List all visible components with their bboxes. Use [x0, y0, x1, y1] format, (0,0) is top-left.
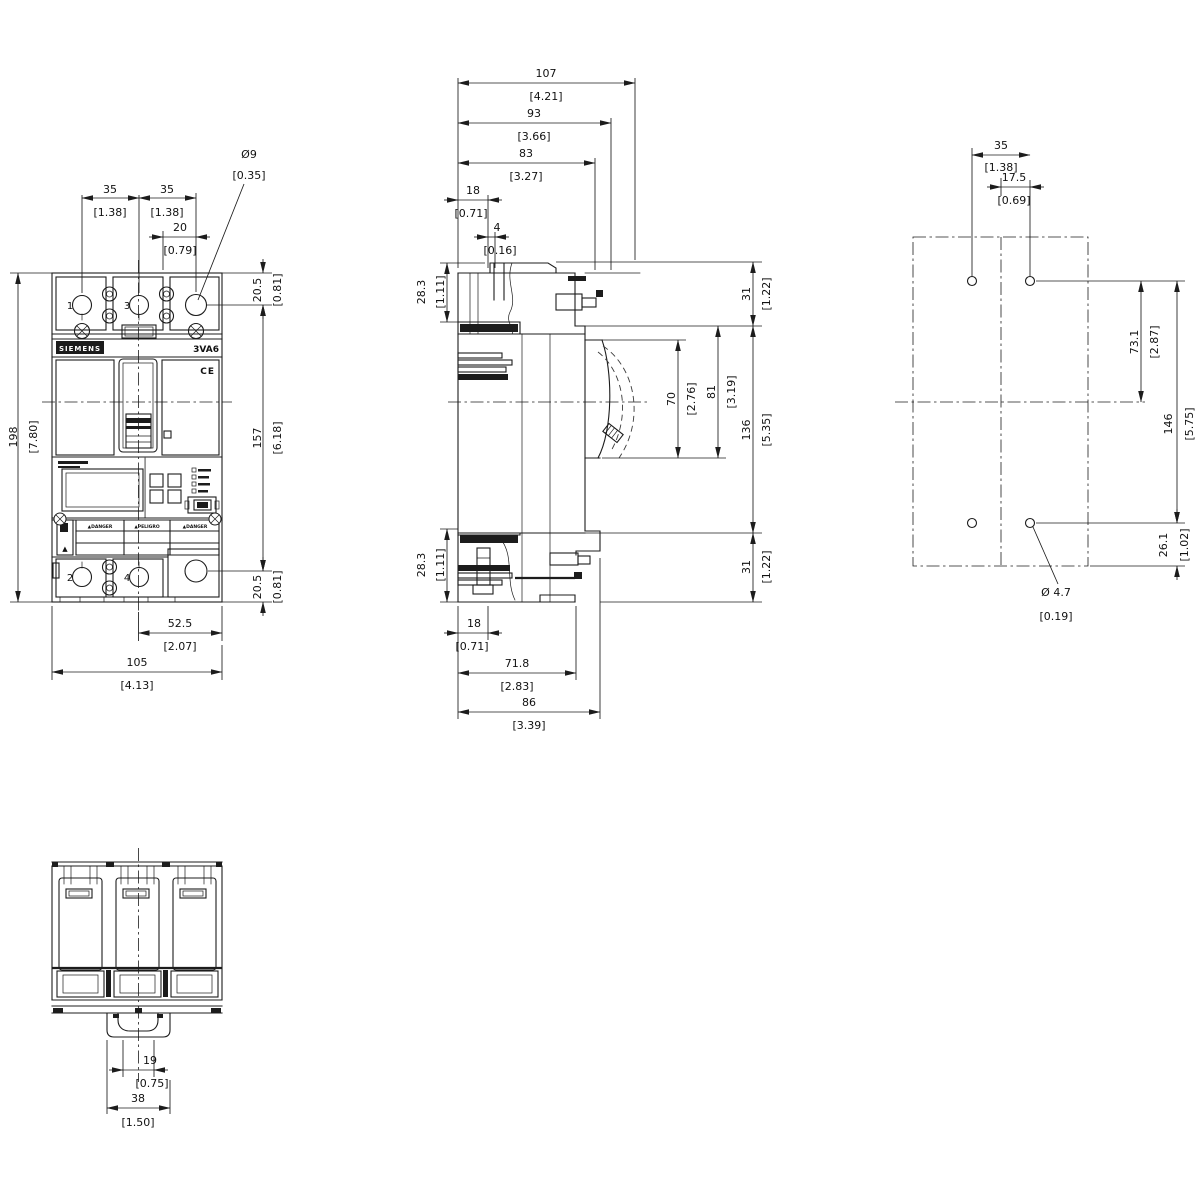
- dim-side-depth-cover-mm: 83: [519, 147, 533, 160]
- dim-drill-row-span-in: [5.75]: [1183, 407, 1196, 440]
- dim-front-bottom-margin-mm: 20.5: [251, 575, 264, 600]
- etu-test-port: [185, 497, 219, 513]
- terminal-hole-5: [186, 295, 207, 316]
- dim-drill-bottom-offset-mm: 26.1: [1157, 533, 1170, 558]
- dim-bottom-rail-width-mm: 38: [131, 1092, 145, 1105]
- dim-side-screw-offset-mm: 4: [494, 221, 501, 234]
- mounting-hole: [1026, 519, 1035, 528]
- pole-module: [116, 866, 159, 970]
- dim-front-top-margin-in: [0.81]: [271, 273, 284, 306]
- dim-side-bottom-terminal-h-in: [1.11]: [434, 548, 447, 581]
- handle-escutcheon: [585, 340, 634, 458]
- dim-front-height-mm: 198: [7, 427, 20, 448]
- dim-drill-center-offset-in: [0.69]: [997, 194, 1030, 207]
- dim-side-escutcheon-h-in: [3.19]: [725, 375, 738, 408]
- side-profile: [458, 263, 640, 602]
- dim-front-top-margin-mm: 20.5: [251, 278, 264, 303]
- dim-bottom-rail-clip-in: [0.75]: [135, 1077, 168, 1090]
- dim-side-escutcheon-h-mm: 81: [705, 385, 718, 399]
- dim-front-pitch-left-in: [1.38]: [93, 206, 126, 219]
- mounting-hole: [968, 519, 977, 528]
- dim-front-height-in: [7.80]: [27, 420, 40, 453]
- side-dimensions: 107 [4.21] 93 [3.66] 83 [3.27] 18 [0.71]…: [415, 67, 773, 732]
- terminal-number-2: 2: [67, 573, 73, 584]
- front-top-terminals: 1 3: [56, 277, 219, 330]
- etu-button: [168, 490, 181, 503]
- etu-status-leds: [192, 468, 211, 493]
- dim-side-depth-cover-in: [3.27]: [509, 170, 542, 183]
- dim-drill-row-to-center-in: [2.87]: [1148, 325, 1161, 358]
- side-view: 107 [4.21] 93 [3.66] 83 [3.27] 18 [0.71]…: [415, 67, 773, 732]
- dim-side-base-depth-mm: 71.8: [505, 657, 530, 670]
- dim-side-terminal-depth-in: [0.71]: [454, 207, 487, 220]
- terminal-hole-6: [185, 560, 207, 582]
- dim-front-hole-span-in: [6.18]: [271, 421, 284, 454]
- dim-side-screw-offset-in: [0.16]: [483, 244, 516, 257]
- mounting-hole: [1026, 277, 1035, 286]
- dim-drill-row-span-mm: 146: [1162, 414, 1175, 435]
- dim-front-pitch-right-mm: 35: [160, 183, 174, 196]
- dim-drill-hole-dia-mm: Ø 4.7: [1041, 586, 1071, 599]
- dim-side-depth-max-in: [4.21]: [529, 90, 562, 103]
- etu-button: [168, 474, 181, 487]
- terminal-number-4: 4: [124, 573, 130, 584]
- dim-drill-hole-pitch-mm: 35: [994, 139, 1008, 152]
- dim-side-mount-depth-mm: 86: [522, 696, 536, 709]
- dim-side-bottom-front-h-in: [1.22]: [760, 550, 773, 583]
- warning-flag-triangle: ▲: [62, 545, 68, 553]
- dim-side-depth-max-mm: 107: [536, 67, 557, 80]
- model-label: 3VA6: [193, 345, 219, 355]
- drill-dimensions: 35 [1.38] 17.5 [0.69] 73.1 [2.87] 146 [5…: [972, 139, 1196, 623]
- dimension-drawing-sheet: 1 3 SIEMENS 3VA6 CE: [0, 0, 1200, 1200]
- terminal-hole-1: [73, 296, 92, 315]
- terminal-hole-2: [73, 568, 92, 587]
- warning-label-3: ▲DANGER: [183, 524, 208, 530]
- dim-side-handle-opening-in: [2.76]: [685, 382, 698, 415]
- front-bottom-terminals: 2 4: [52, 549, 219, 602]
- dim-side-bottom-front-h-mm: 31: [740, 560, 753, 574]
- dim-side-handle-opening-mm: 70: [665, 392, 678, 406]
- dim-front-pitch-left-mm: 35: [103, 183, 117, 196]
- dim-bottom-rail-width-in: [1.50]: [121, 1116, 154, 1129]
- brand-label: SIEMENS: [59, 345, 101, 353]
- dim-front-center-edge-in: [2.07]: [163, 640, 196, 653]
- side-bottom-terminal: [473, 538, 590, 602]
- dim-front-hole-offset-in: [0.79]: [163, 244, 196, 257]
- terminal-number-1: 1: [67, 301, 73, 312]
- drawing-canvas: 1 3 SIEMENS 3VA6 CE: [0, 0, 1200, 1200]
- dim-front-hole-dia-mm: Ø9: [241, 148, 257, 161]
- dim-side-top-terminal-h-mm: 28.3: [415, 280, 428, 305]
- warning-label-2: ▲PELIGRO: [134, 524, 160, 530]
- breaker-outline-phantom: [913, 237, 1088, 566]
- bottom-view: 19 [0.75] 38 [1.50]: [52, 848, 222, 1129]
- dim-front-width-mm: 105: [127, 656, 148, 669]
- dim-front-pitch-right-in: [1.38]: [150, 206, 183, 219]
- dim-front-center-edge-mm: 52.5: [168, 617, 193, 630]
- dim-drill-row-to-center-mm: 73.1: [1128, 330, 1141, 355]
- dim-side-base-depth-in: [2.83]: [500, 680, 533, 693]
- dim-front-width-in: [4.13]: [120, 679, 153, 692]
- terminal-hole-3: [130, 296, 149, 315]
- etu-panel: [52, 458, 222, 518]
- etu-button: [150, 490, 163, 503]
- dim-side-bottom-terminal-h-mm: 28.3: [415, 553, 428, 578]
- etu-button: [150, 474, 163, 487]
- dim-drill-center-offset-mm: 17.5: [1002, 171, 1027, 184]
- warning-label-1: ▲DANGER: [88, 524, 113, 530]
- terminal-number-3: 3: [124, 301, 130, 312]
- dim-front-bottom-margin-in: [0.81]: [271, 570, 284, 603]
- dim-front-hole-dia-in: [0.35]: [232, 169, 265, 182]
- brand-band: SIEMENS 3VA6: [52, 339, 222, 357]
- dim-front-hole-span-mm: 157: [251, 428, 264, 449]
- dim-side-terminal-depth-b-in: [0.71]: [455, 640, 488, 653]
- dim-front-hole-offset-mm: 20: [173, 221, 187, 234]
- dim-side-terminal-depth-b-mm: 18: [467, 617, 481, 630]
- rear-connector-top: [458, 353, 512, 380]
- dim-side-mount-depth-in: [3.39]: [512, 719, 545, 732]
- dim-side-terminal-depth-mm: 18: [466, 184, 480, 197]
- drill-plan-view: 35 [1.38] 17.5 [0.69] 73.1 [2.87] 146 [5…: [895, 139, 1196, 623]
- mounting-hole: [968, 277, 977, 286]
- ce-mark: CE: [200, 367, 215, 377]
- dim-side-body-h-in: [5.35]: [760, 413, 773, 446]
- dim-side-depth-escutcheon-mm: 93: [527, 107, 541, 120]
- breaker-front-outline: [52, 273, 222, 602]
- dim-side-top-front-h-mm: 31: [740, 287, 753, 301]
- front-view: 1 3 SIEMENS 3VA6 CE: [7, 148, 284, 692]
- dim-drill-bottom-offset-in: [1.02]: [1178, 528, 1191, 561]
- dim-side-body-h-mm: 136: [740, 420, 753, 441]
- bottom-body: [52, 862, 222, 1013]
- dim-side-top-terminal-h-in: [1.11]: [434, 275, 447, 308]
- front-face: CE: [52, 359, 222, 457]
- terminal-hole-4: [130, 568, 149, 587]
- etu-display: [62, 469, 143, 511]
- dim-side-depth-escutcheon-in: [3.66]: [517, 130, 550, 143]
- front-cover-screws: [52, 324, 222, 339]
- dim-bottom-rail-clip-mm: 19: [143, 1054, 157, 1067]
- pole-module: [173, 866, 216, 970]
- dim-drill-hole-dia-in: [0.19]: [1039, 610, 1072, 623]
- trip-test-button: [164, 431, 171, 438]
- dim-side-top-front-h-in: [1.22]: [760, 277, 773, 310]
- pole-module: [59, 866, 102, 970]
